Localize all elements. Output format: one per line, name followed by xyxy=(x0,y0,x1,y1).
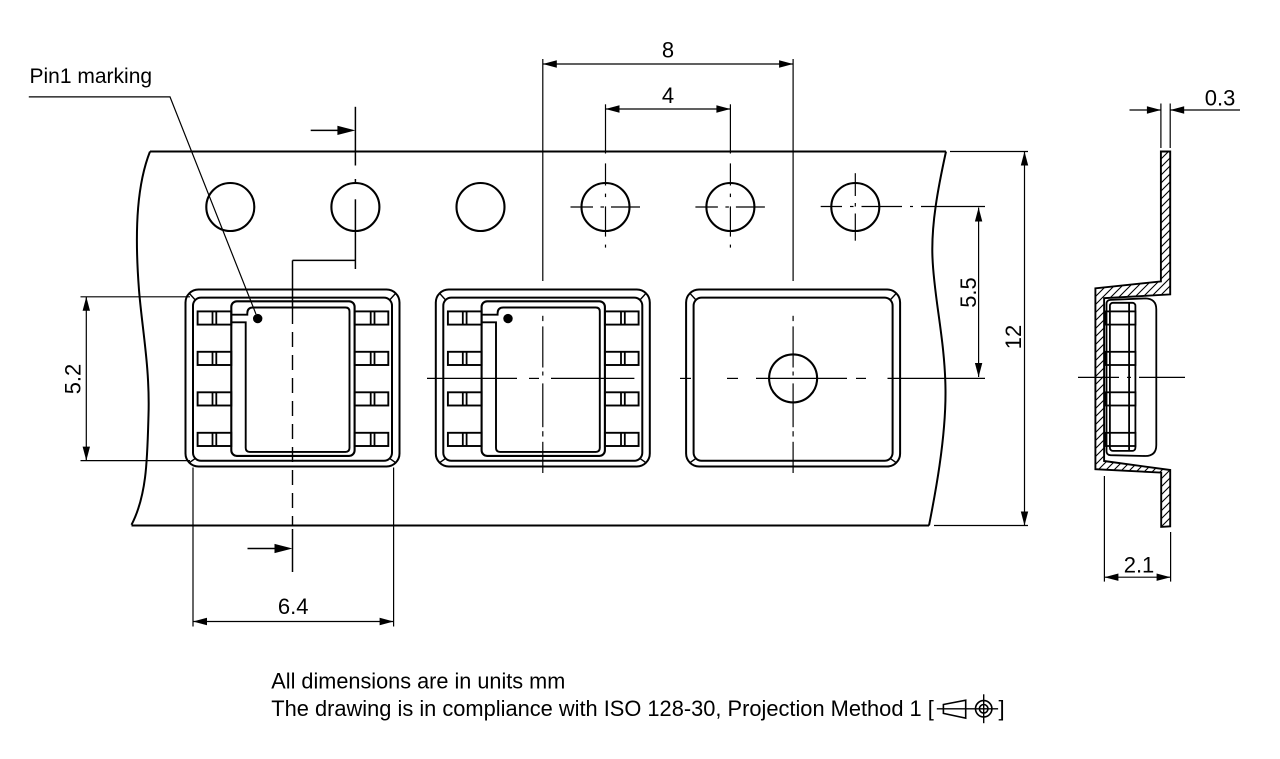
svg-text:8: 8 xyxy=(662,38,674,63)
svg-text:All dimensions are in units mm: All dimensions are in units mm xyxy=(271,669,565,694)
svg-text:5.2: 5.2 xyxy=(61,364,86,395)
svg-text:Pin1 marking: Pin1 marking xyxy=(30,65,153,88)
svg-text:5.5: 5.5 xyxy=(956,277,981,308)
svg-text:6.4: 6.4 xyxy=(278,594,309,619)
svg-text:12: 12 xyxy=(1001,325,1026,349)
svg-text:]: ] xyxy=(999,696,1005,721)
svg-text:4: 4 xyxy=(662,83,674,108)
svg-text:0.3: 0.3 xyxy=(1205,86,1236,111)
svg-text:2.1: 2.1 xyxy=(1124,553,1155,578)
svg-text:The drawing is in compliance w: The drawing is in compliance with ISO 12… xyxy=(271,696,934,721)
